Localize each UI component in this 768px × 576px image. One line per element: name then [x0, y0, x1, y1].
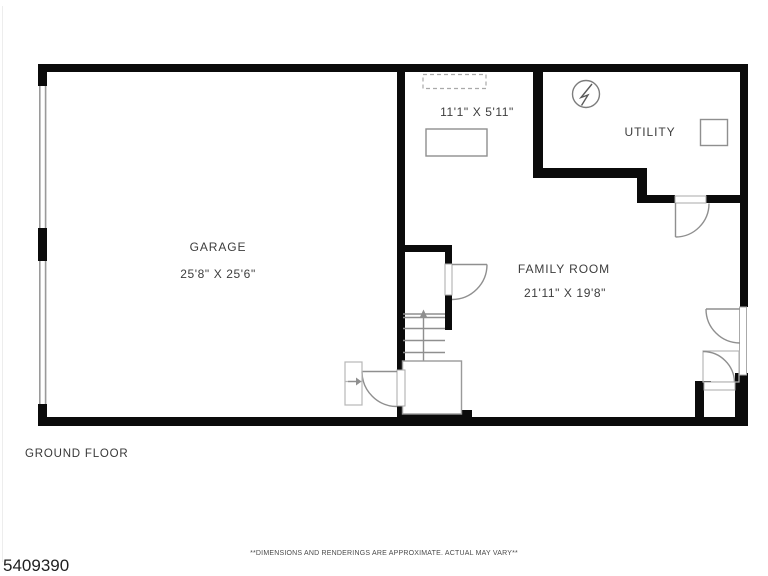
den-dims: 11'1" X 5'11": [440, 105, 514, 119]
patio-door-top-icon: [706, 307, 747, 375]
bottom-wall: [38, 417, 748, 426]
left-wall-bottom-corner: [38, 404, 47, 426]
closet-right-wall-upper: [445, 252, 452, 264]
patio-door-bottom-icon: [703, 351, 739, 390]
mls-number: 5409390: [3, 556, 69, 575]
family-room-label: FAMILY ROOM: [518, 262, 610, 276]
right-wall-upper: [740, 64, 748, 307]
stair-top-wall: [397, 245, 452, 252]
stair-landing: [403, 361, 462, 414]
garage-step: [345, 362, 362, 405]
left-wall-mid-pier: [38, 228, 47, 261]
hvac-unit-icon: [701, 120, 728, 146]
counter-icon: [426, 129, 487, 156]
left-wall-top-corner: [38, 64, 47, 86]
disclaimer-text: **DIMENSIONS AND RENDERINGS ARE APPROXIM…: [250, 550, 518, 557]
floor-label: GROUND FLOOR: [25, 448, 129, 460]
garage-label: GARAGE: [190, 240, 247, 254]
garage-dims: 25'8" X 25'6": [180, 267, 256, 281]
step-direction-arrow: [348, 378, 362, 386]
closet-right-wall-lower: [445, 295, 452, 330]
alcove-threshold: [704, 382, 735, 390]
family-top-wall-right: [706, 195, 740, 203]
garage-divider-wall-upper: [397, 72, 405, 252]
staircase-icon: [403, 310, 462, 415]
family-room-dims: 21'11" X 19'8": [524, 286, 606, 300]
alcove-interior: [704, 390, 735, 417]
garage-entry-door-icon: [345, 362, 405, 407]
floorplan-image: GARAGE 25'8" X 25'6" 11'1" X 5'11" UTILI…: [0, 0, 768, 576]
family-top-wall-left: [637, 195, 675, 203]
utility-door-icon: [675, 196, 709, 237]
floorplan-canvas: GARAGE 25'8" X 25'6" 11'1" X 5'11" UTILI…: [0, 0, 768, 576]
water-heater-icon: [573, 81, 600, 108]
top-wall: [38, 64, 748, 72]
utility-bottom-wall: [533, 168, 643, 178]
overhead-dashed-icon: [423, 75, 486, 89]
utility-left-wall: [533, 72, 543, 178]
closet-door-icon: [445, 264, 487, 300]
utility-label: UTILITY: [625, 125, 676, 139]
